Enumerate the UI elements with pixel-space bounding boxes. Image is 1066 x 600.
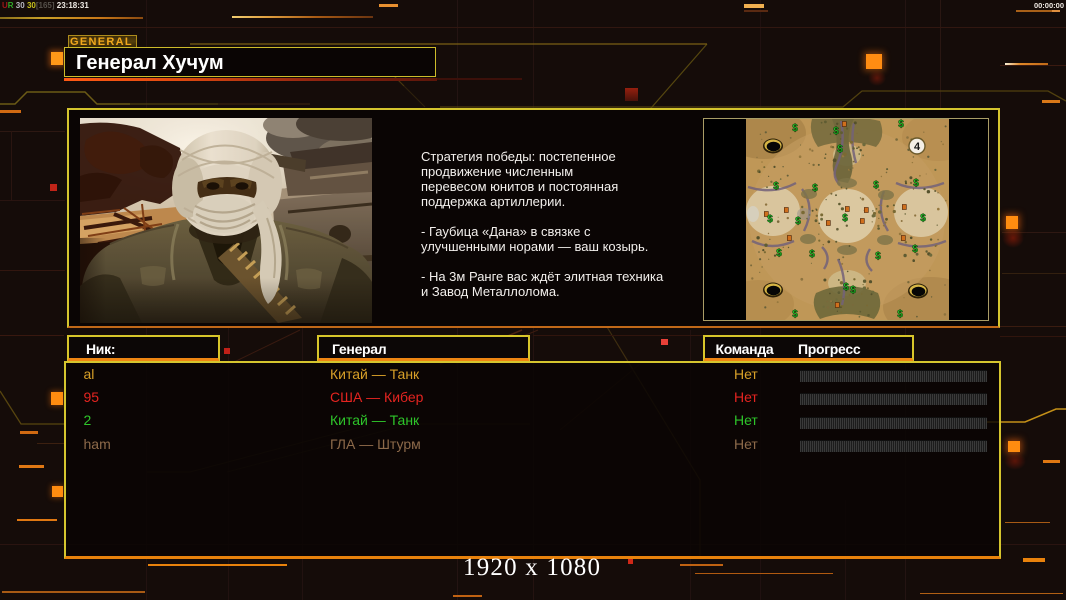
svg-text:$: $ <box>920 213 926 224</box>
svg-text:$: $ <box>795 216 801 227</box>
svg-text:$: $ <box>809 249 815 260</box>
svg-text:$: $ <box>833 126 839 137</box>
svg-text:$: $ <box>842 213 848 224</box>
svg-text:$: $ <box>897 309 903 320</box>
svg-text:$: $ <box>913 178 919 189</box>
svg-text:$: $ <box>812 183 818 194</box>
svg-text:$: $ <box>792 309 798 320</box>
svg-text:$: $ <box>875 251 881 262</box>
svg-text:$: $ <box>873 180 879 191</box>
svg-text:$: $ <box>776 248 782 259</box>
svg-text:$: $ <box>773 181 779 192</box>
svg-text:$: $ <box>843 282 849 293</box>
svg-text:$: $ <box>767 214 773 225</box>
svg-text:4: 4 <box>914 141 921 153</box>
svg-text:$: $ <box>850 285 856 296</box>
svg-text:$: $ <box>898 119 904 130</box>
svg-text:$: $ <box>912 244 918 255</box>
svg-text:$: $ <box>792 123 798 134</box>
svg-text:$: $ <box>837 144 843 155</box>
